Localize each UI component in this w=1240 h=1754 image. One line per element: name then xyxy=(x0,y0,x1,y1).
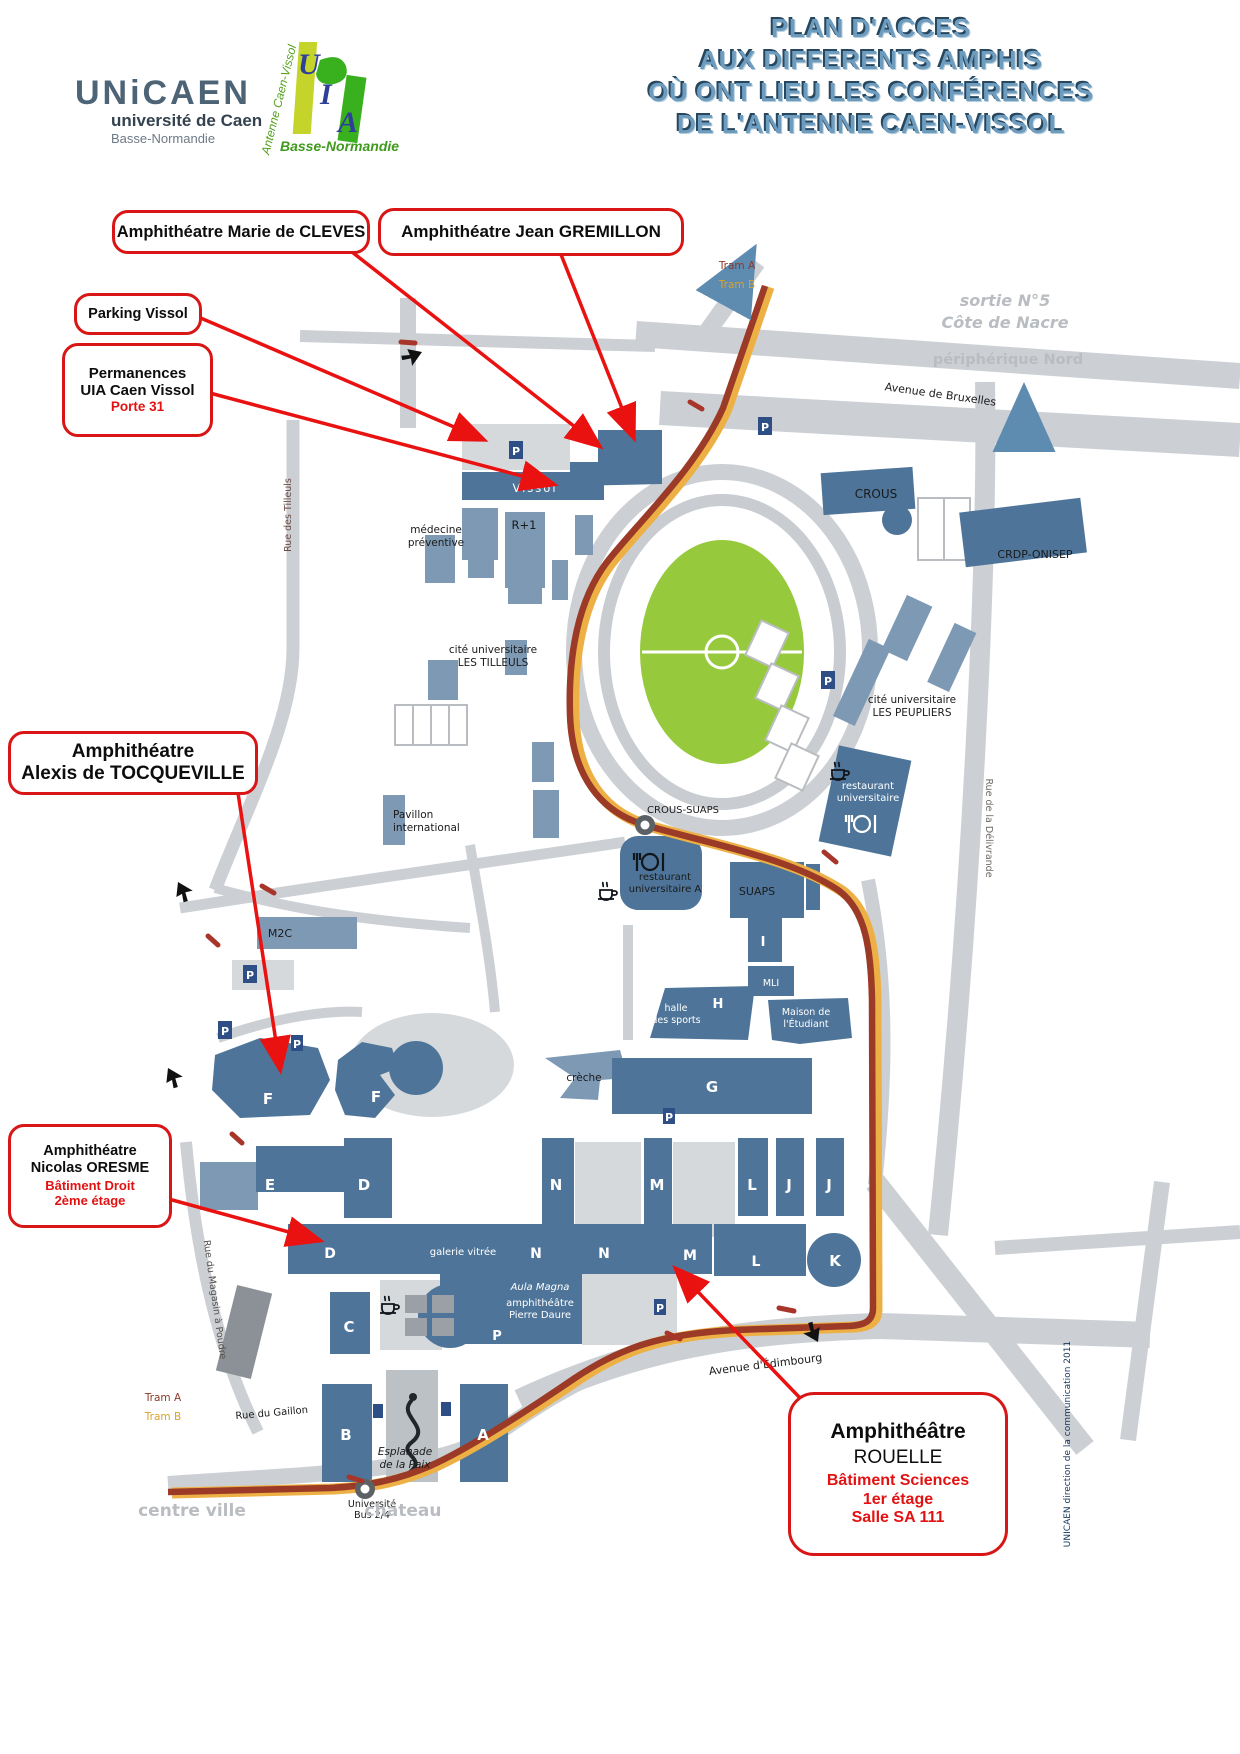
svg-text:P: P xyxy=(221,1025,229,1038)
cursor-icon xyxy=(175,882,194,903)
crdp-label: CRDP-ONISEP xyxy=(997,548,1073,561)
title-line-4: DE L'ANTENNE CAEN-VISSOL xyxy=(628,108,1114,140)
building-h-label: H xyxy=(713,997,724,1012)
building-cleves-gremillon xyxy=(570,430,662,486)
unicaen-subtitle: université de Caen xyxy=(75,111,262,131)
maison-label-1: Maison de xyxy=(782,1007,830,1018)
campus-access-map-page: P P P P P P P P Tram A Tram xyxy=(0,0,1240,1754)
rue-tilleuls-label: Rue des Tilleuls xyxy=(283,478,294,552)
m2c-label: M2C xyxy=(268,927,292,940)
resto-u-label-1: restaurant xyxy=(842,781,894,792)
callout-tocqueville-line2: Alexis de TOCQUEVILLE xyxy=(21,763,244,785)
uia-region-label: Basse-Normandie xyxy=(280,138,399,154)
building-galerie xyxy=(288,1224,712,1274)
svg-text:B: B xyxy=(340,1426,351,1444)
callout-gremillon: Amphithéatre Jean GREMILLON xyxy=(378,208,684,256)
callout-oresme-line1: Amphithéatre xyxy=(43,1143,136,1160)
parking-icon xyxy=(441,1402,451,1416)
parking-icon: P xyxy=(509,441,523,459)
page-title: PLAN D'ACCES AUX DIFFERENTS AMPHIS OÙ ON… xyxy=(628,12,1114,140)
medecine-label-1: médecine xyxy=(410,524,462,536)
svg-text:P: P xyxy=(293,1038,301,1051)
svg-text:P: P xyxy=(665,1111,673,1124)
chateau-label: château xyxy=(365,1501,442,1521)
callout-parking-vissol: Parking Vissol xyxy=(74,293,202,335)
title-line-1: PLAN D'ACCES xyxy=(628,12,1114,44)
callout-permanences-line2: UIA Caen Vissol xyxy=(80,382,194,399)
svg-text:A: A xyxy=(477,1426,489,1444)
rue-magasin-label: Rue du Magasin à Poudre xyxy=(201,1239,229,1360)
crous-suaps-label: CROUS-SUAPS xyxy=(647,805,719,816)
building-g-label: G xyxy=(706,1078,718,1096)
halle-label-2: des sports xyxy=(651,1015,700,1026)
svg-text:P: P xyxy=(512,445,520,458)
svg-text:P: P xyxy=(656,1302,664,1315)
centre-ville-label: centre ville xyxy=(138,1501,246,1521)
svg-text:D: D xyxy=(324,1246,336,1262)
unicaen-wordmark: UNiCAEN xyxy=(75,74,262,113)
parking-icon: P xyxy=(654,1299,666,1315)
parking-icon: P xyxy=(218,1021,232,1039)
callout-tocqueville: Amphithéatre Alexis de TOCQUEVILLE xyxy=(8,731,258,795)
parking-icon: P xyxy=(758,417,772,435)
cafeteria-icon xyxy=(598,882,617,900)
svg-text:M: M xyxy=(683,1248,697,1264)
rue-delivrande-label: Rue de la Délivrande xyxy=(983,778,994,877)
pavillon-label-1: Pavillon xyxy=(393,809,433,821)
svg-text:M: M xyxy=(650,1176,665,1194)
unicaen-logo: UNiCAEN université de Caen Basse-Normand… xyxy=(75,74,262,146)
svg-text:J: J xyxy=(825,1176,832,1194)
cite-peupliers-label-1: cité universitaire xyxy=(868,694,956,706)
parking-icon: P xyxy=(821,671,835,689)
callout-gremillon-label: Amphithéatre Jean GREMILLON xyxy=(401,222,661,242)
cote-nacre-label: Côte de Nacre xyxy=(941,313,1068,332)
svg-text:L: L xyxy=(747,1176,757,1194)
svg-text:K: K xyxy=(829,1252,842,1270)
callout-oresme-line3: Bâtiment Droit xyxy=(45,1179,135,1194)
svg-text:L: L xyxy=(752,1254,761,1270)
resto-u-label-2: universitaire xyxy=(837,793,900,804)
svg-text:D: D xyxy=(358,1176,370,1194)
tram-a-bottom-label: Tram A xyxy=(144,1392,182,1404)
resto-a-label-2: universitaire A xyxy=(629,884,702,895)
callout-cleves: Amphithéatre Marie de CLEVES xyxy=(112,210,370,254)
parking-icon: P xyxy=(243,965,257,983)
callout-rouelle-line5: Salle SA 111 xyxy=(852,1509,945,1527)
callout-oresme-line4: 2ème étage xyxy=(55,1194,126,1209)
svg-text:C: C xyxy=(343,1318,354,1336)
crous-label: CROUS xyxy=(855,487,898,501)
parking-icon: P xyxy=(291,1035,303,1051)
cite-tilleuls-label-2: LES TILLEULS xyxy=(458,657,529,669)
callout-oresme-line2: Nicolas ORESME xyxy=(31,1160,149,1177)
credit-label: UNICAEN direction de la communication 20… xyxy=(1063,1341,1073,1547)
pavillon-label-2: international xyxy=(393,822,460,834)
esplanade-label-1: Esplanade xyxy=(378,1446,432,1458)
tram-stop-crous-suaps xyxy=(635,815,655,835)
uia-logo: U I A Antenne Caen-Vissol Basse-Normandi… xyxy=(258,30,388,160)
pierre-daure-label-1: amphithéâtre xyxy=(506,1297,574,1309)
callout-parking-label: Parking Vissol xyxy=(88,306,188,323)
svg-text:P: P xyxy=(761,421,769,434)
creche-label: crèche xyxy=(566,1072,601,1084)
tram-a-label: Tram A xyxy=(718,260,756,272)
mli-label: MLI xyxy=(763,978,779,989)
galerie-vitree-label: galerie vitrée xyxy=(430,1246,496,1258)
callout-permanences-porte: Porte 31 xyxy=(111,399,164,415)
callout-rouelle-line4: 1er étage xyxy=(863,1491,933,1509)
svg-text:J: J xyxy=(785,1176,792,1194)
resto-a-label-1: restaurant xyxy=(639,872,691,883)
aula-magna-label: Aula Magna xyxy=(510,1282,570,1293)
callout-rouelle: Amphithéâtre ROUELLE Bâtiment Sciences 1… xyxy=(788,1392,1008,1556)
pierre-daure-label-2: Pierre Daure xyxy=(509,1310,571,1321)
callout-cleves-label: Amphithéatre Marie de CLEVES xyxy=(117,223,365,242)
svg-text:F: F xyxy=(371,1088,381,1106)
uia-letter-i: I xyxy=(320,78,332,112)
svg-text:P: P xyxy=(824,675,832,688)
svg-text:N: N xyxy=(530,1246,542,1262)
callout-rouelle-line2: ROUELLE xyxy=(854,1447,943,1469)
svg-text:P: P xyxy=(246,969,254,982)
uia-letter-u: U xyxy=(298,48,320,82)
tram-b-label: Tram B xyxy=(718,279,755,291)
svg-text:N: N xyxy=(598,1246,610,1262)
maison-label-2: l'Étudiant xyxy=(783,1018,829,1030)
parking-icon xyxy=(373,1404,383,1418)
building-i-label: I xyxy=(761,935,766,950)
callout-oresme: Amphithéatre Nicolas ORESME Bâtiment Dro… xyxy=(8,1124,172,1228)
callout-rouelle-line3: Bâtiment Sciences xyxy=(827,1472,969,1490)
campus-map: P P P P P P P P Tram A Tram xyxy=(0,0,1240,1754)
cite-peupliers-label-2: LES PEUPLIERS xyxy=(872,707,951,719)
esplanade-label-2: de la Paix xyxy=(379,1459,431,1471)
cite-tilleuls-label-1: cité universitaire xyxy=(449,644,537,656)
halle-label-1: halle xyxy=(665,1003,688,1014)
uia-letter-a: A xyxy=(338,106,358,140)
svg-text:F: F xyxy=(263,1090,273,1108)
r1-label: R+1 xyxy=(512,518,537,532)
suaps-label: SUAPS xyxy=(739,885,775,898)
peripherique-label: périphérique Nord xyxy=(933,352,1083,368)
title-line-3: OÙ ONT LIEU LES CONFÉRENCES xyxy=(628,76,1114,108)
medecine-label-2: préventive xyxy=(408,537,464,549)
callout-tocqueville-line1: Amphithéatre xyxy=(72,741,194,763)
callout-permanences: Permanences UIA Caen Vissol Porte 31 xyxy=(62,343,213,437)
tram-b-bottom-label: Tram B xyxy=(144,1411,181,1423)
unicaen-region: Basse-Normandie xyxy=(75,131,262,146)
cursor-icon xyxy=(165,1068,184,1089)
callout-permanences-line1: Permanences xyxy=(89,365,187,382)
svg-text:P: P xyxy=(492,1329,502,1344)
svg-text:E: E xyxy=(265,1176,275,1194)
sortie-label: sortie N°5 xyxy=(960,291,1050,310)
title-line-2: AUX DIFFERENTS AMPHIS xyxy=(628,44,1114,76)
svg-text:N: N xyxy=(550,1176,563,1194)
parking-icon: P xyxy=(663,1108,675,1124)
callout-rouelle-line1: Amphithéâtre xyxy=(830,1420,965,1444)
